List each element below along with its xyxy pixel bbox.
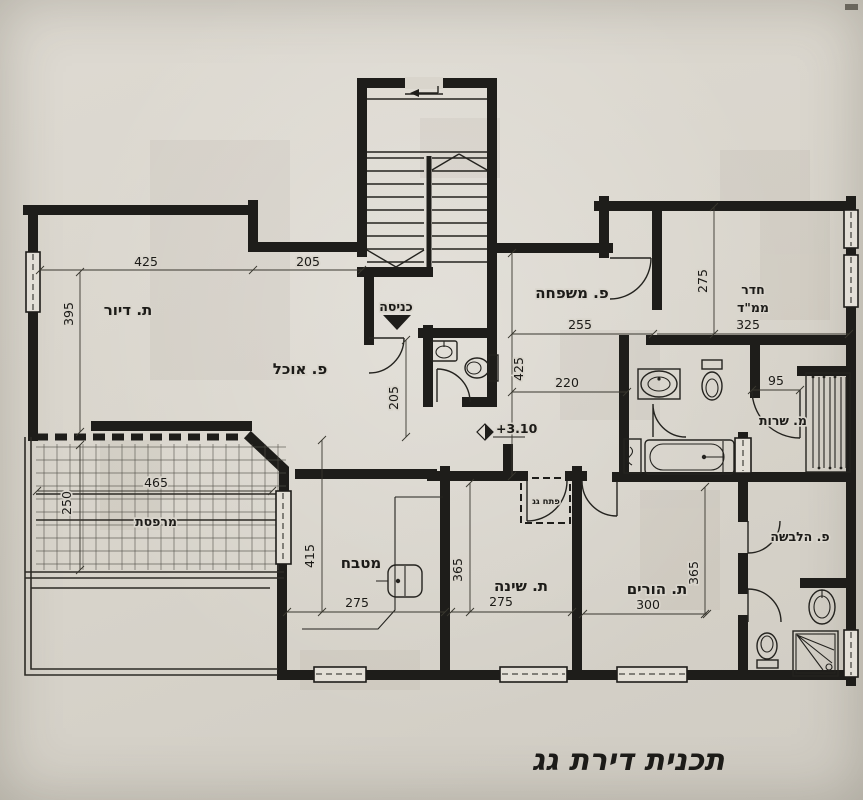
shower-toilet-icon xyxy=(757,633,778,668)
room-label-family: פ. משפחה xyxy=(535,284,609,302)
room-label-dressing: פ. הלבשה xyxy=(770,529,829,544)
room-label-entrance: כניסה xyxy=(379,299,413,314)
level-marker-label: +3.10 xyxy=(496,421,538,436)
dim-living-height: 395 xyxy=(61,302,76,326)
dim-parents-height: 365 xyxy=(686,561,701,585)
dim-hall-height: 425 xyxy=(511,357,526,381)
dim-kitchen-width: 275 xyxy=(345,595,369,610)
stair-direction-arrow-icon xyxy=(410,89,419,97)
dim-bedroom-height: 365 xyxy=(450,558,465,582)
dim-mamad-height: 275 xyxy=(695,269,710,293)
dim-service-opening: 95 xyxy=(768,373,784,388)
dim-parents-width: 300 xyxy=(636,597,660,612)
window-icon xyxy=(276,491,291,564)
family-door-arc xyxy=(610,258,651,299)
roof-hatch-label: פתח גג xyxy=(532,497,560,507)
window-icon xyxy=(844,210,858,248)
scan-corner-mark xyxy=(845,4,858,10)
dim-family-width: 255 xyxy=(568,317,592,332)
dim-balcony-depth: 250 xyxy=(59,491,74,515)
dim-kitchen-height: 415 xyxy=(302,544,317,568)
entry-arrow-icon xyxy=(383,315,411,330)
window-icon xyxy=(844,255,858,307)
window-icon xyxy=(26,252,40,312)
room-label-dining: פ. אוכל xyxy=(273,360,328,378)
dim-living-width: 425 xyxy=(134,254,158,269)
dim-balcony-width: 465 xyxy=(144,475,168,490)
drying-rack-icon xyxy=(806,373,850,472)
entry-door-arc xyxy=(369,338,404,373)
wc-sink-icon xyxy=(431,341,457,361)
window-icon xyxy=(314,667,366,682)
kitchen-sink-icon xyxy=(376,565,422,597)
room-label-living: ת. דיור xyxy=(104,301,153,319)
room-label-balcony: מרפסת xyxy=(135,514,177,529)
parents-door-arc xyxy=(582,481,617,516)
window-icon xyxy=(844,630,858,677)
bathtub-icon xyxy=(645,440,734,474)
room-label-service: מ. שרות xyxy=(759,413,807,428)
room-label-bedroom: ת. שינה xyxy=(494,577,548,595)
dim-hall-width: 220 xyxy=(555,375,579,390)
floorplan-svg: 425 205 395 255 325 275 425 220 205 95 4… xyxy=(0,0,863,800)
dim-bedroom-width: 275 xyxy=(489,594,513,609)
bath-toilet-icon xyxy=(702,360,722,400)
floor-plan-scan: 425 205 395 255 325 275 425 220 205 95 4… xyxy=(0,0,863,800)
dim-mamad-width: 325 xyxy=(736,317,760,332)
room-label-kitchen: מטבח xyxy=(341,554,382,572)
shower-door-arc xyxy=(748,589,781,622)
room-label-mamad-1: חדר xyxy=(741,282,764,297)
window-icon xyxy=(617,667,687,682)
window-icon xyxy=(500,667,567,682)
room-label-parents: ת. הורים xyxy=(627,580,688,598)
dim-entry-depth: 205 xyxy=(386,386,401,410)
room-label-mamad-2: ממ"ד xyxy=(737,300,769,315)
window-icon xyxy=(735,438,751,473)
plan-title: תכנית דירת גג xyxy=(531,743,725,778)
shower-tray-icon xyxy=(793,631,838,676)
shower-sink-icon xyxy=(809,590,835,624)
dim-entry-width: 205 xyxy=(296,254,320,269)
